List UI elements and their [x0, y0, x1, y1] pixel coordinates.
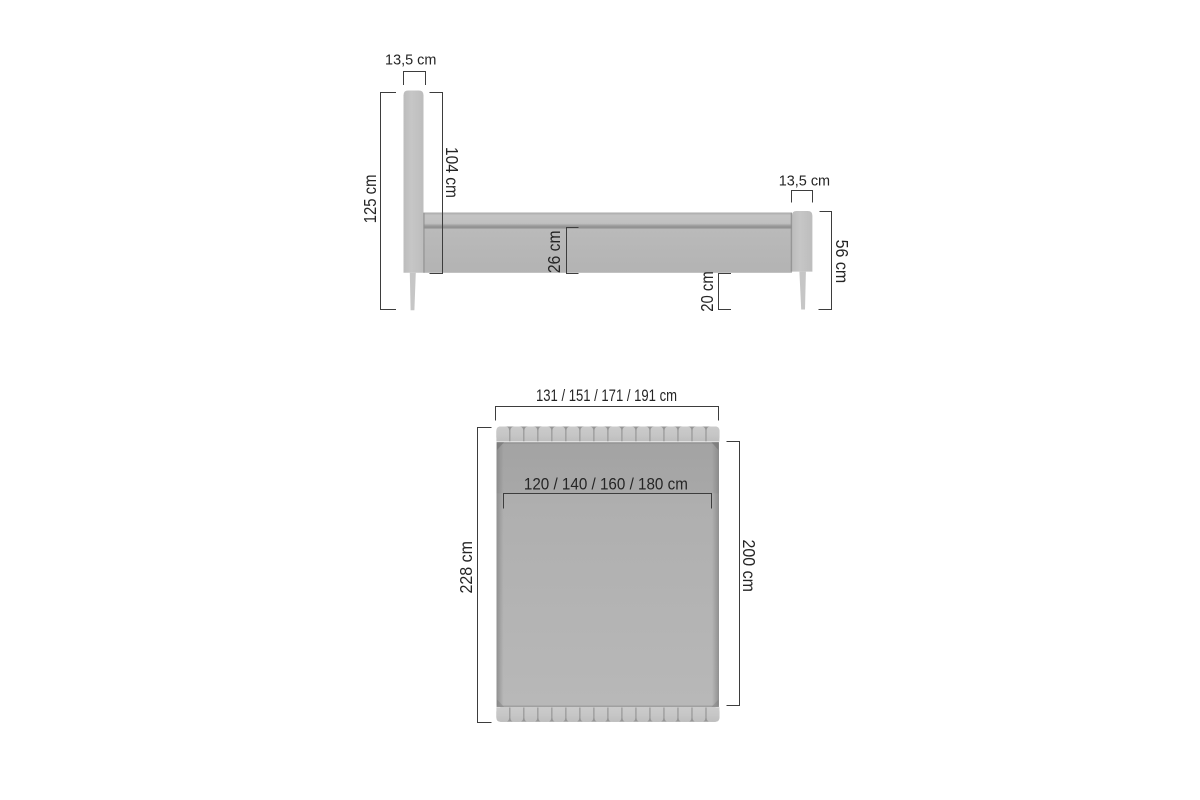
svg-text:56 cm: 56 cm [832, 240, 852, 284]
svg-text:200 cm: 200 cm [739, 540, 759, 593]
svg-text:20 cm: 20 cm [697, 271, 717, 312]
svg-text:26 cm: 26 cm [544, 231, 564, 274]
svg-text:228 cm: 228 cm [456, 541, 476, 594]
svg-text:13,5 cm: 13,5 cm [385, 52, 436, 69]
svg-text:125 cm: 125 cm [360, 175, 380, 224]
svg-text:120 / 140 / 160 / 180 cm: 120 / 140 / 160 / 180 cm [524, 474, 688, 493]
svg-text:104 cm: 104 cm [442, 147, 462, 198]
svg-text:131 / 151 / 171 / 191 cm: 131 / 151 / 171 / 191 cm [536, 386, 677, 405]
svg-text:13,5 cm: 13,5 cm [779, 172, 830, 189]
